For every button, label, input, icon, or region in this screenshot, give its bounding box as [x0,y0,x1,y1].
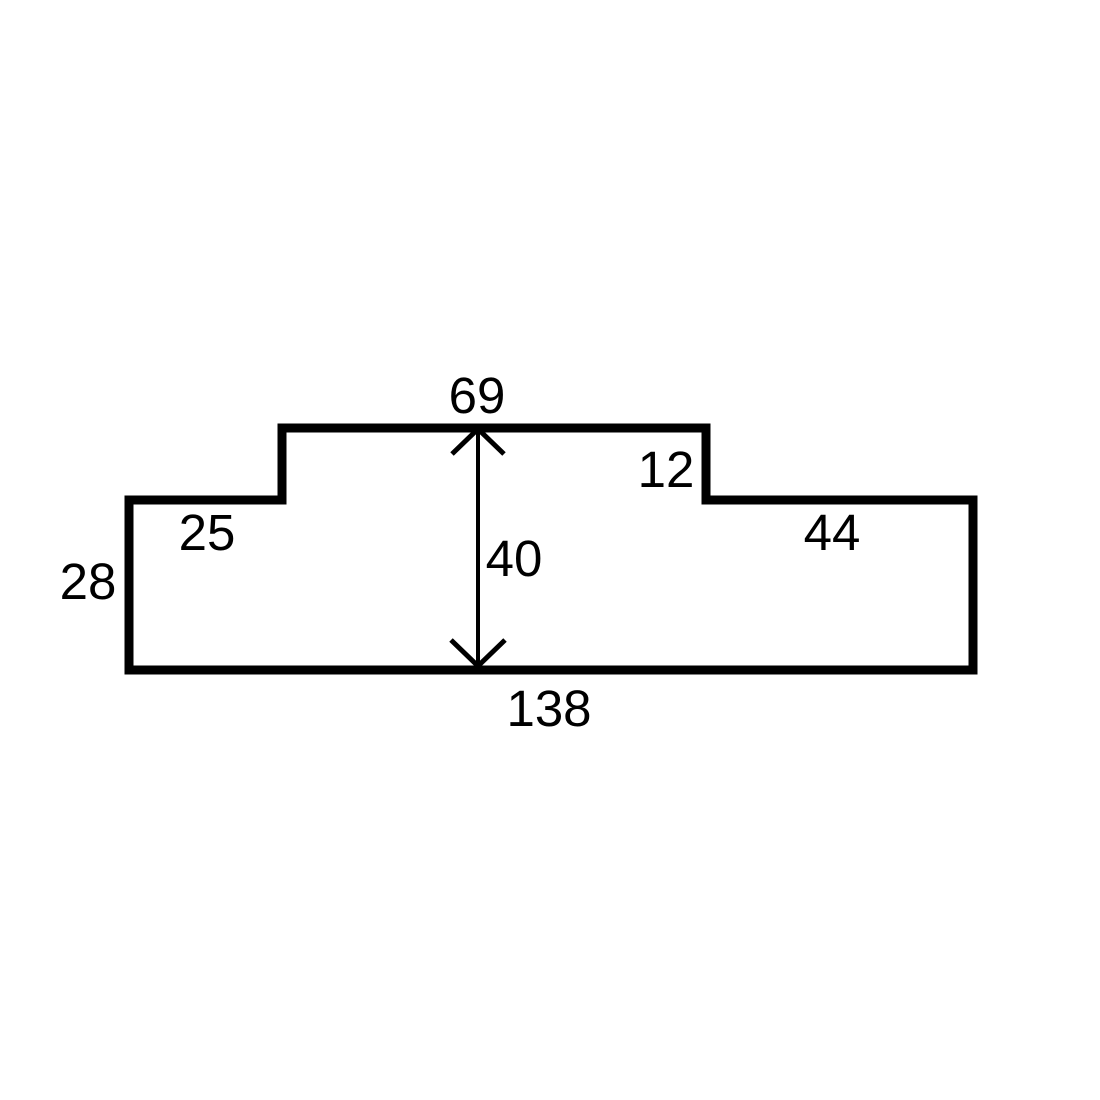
label-left-shoulder-width: 25 [179,504,236,561]
label-center-height: 40 [486,530,543,587]
diagram-canvas: 69 12 25 44 28 40 138 [0,0,1100,1100]
label-top-width: 69 [449,367,506,424]
label-right-step-height: 12 [638,441,695,498]
label-left-side-height: 28 [60,553,117,610]
label-bottom-width: 138 [506,680,591,737]
dimension-diagram: 69 12 25 44 28 40 138 [0,0,1100,1100]
label-right-shoulder-width: 44 [804,504,861,561]
